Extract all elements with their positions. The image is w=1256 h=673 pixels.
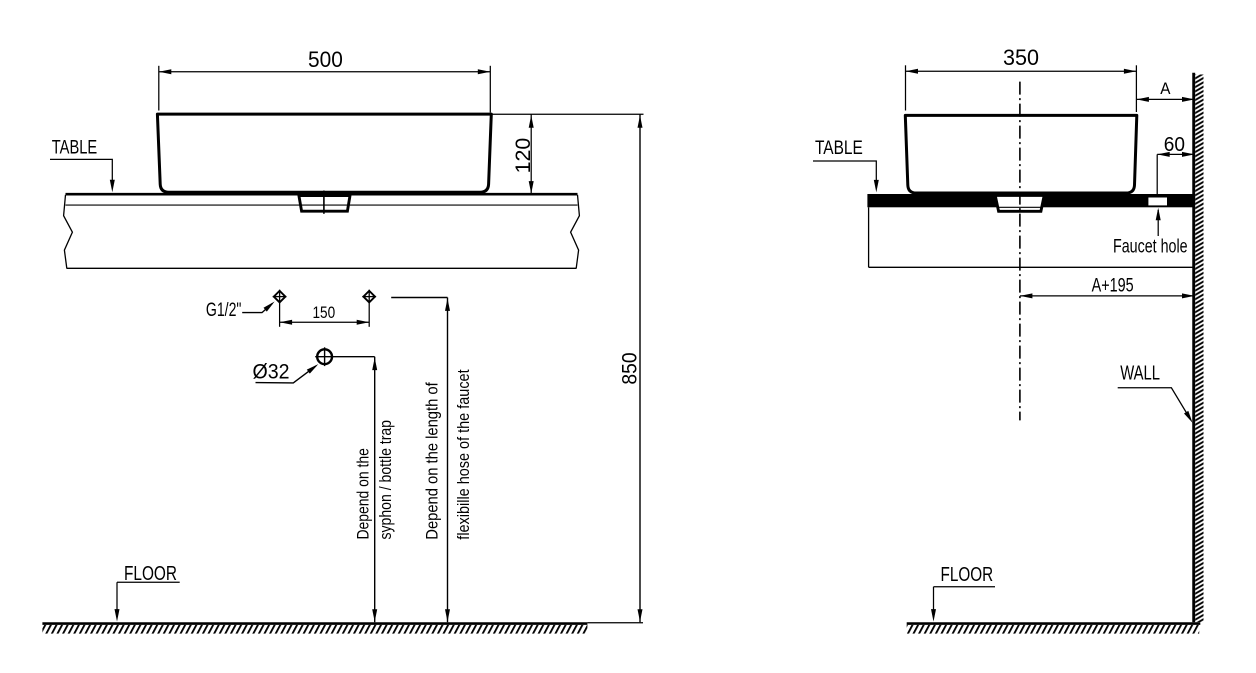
svg-text:TABLE: TABLE	[52, 137, 97, 158]
svg-text:850: 850	[619, 352, 642, 384]
svg-text:Depend on the length of: Depend on the length of	[423, 382, 442, 540]
svg-text:Depend on the: Depend on the	[353, 448, 372, 539]
svg-text:350: 350	[1003, 45, 1039, 70]
svg-text:Ø32: Ø32	[253, 360, 290, 383]
svg-text:syphon / bottle trap: syphon / bottle trap	[376, 420, 395, 540]
svg-text:WALL: WALL	[1120, 362, 1160, 384]
svg-text:G1/2": G1/2"	[206, 300, 242, 321]
svg-text:A: A	[1160, 79, 1171, 98]
svg-text:FLOOR: FLOOR	[941, 564, 994, 586]
svg-text:150: 150	[312, 304, 335, 322]
svg-text:flexibille hose of the faucet: flexibille hose of the faucet	[454, 369, 473, 540]
svg-text:A+195: A+195	[1092, 275, 1134, 296]
svg-text:TABLE: TABLE	[815, 138, 863, 159]
svg-text:60: 60	[1164, 134, 1185, 156]
svg-text:120: 120	[512, 138, 535, 174]
svg-text:Faucet hole: Faucet hole	[1113, 235, 1188, 257]
svg-text:500: 500	[308, 47, 343, 72]
